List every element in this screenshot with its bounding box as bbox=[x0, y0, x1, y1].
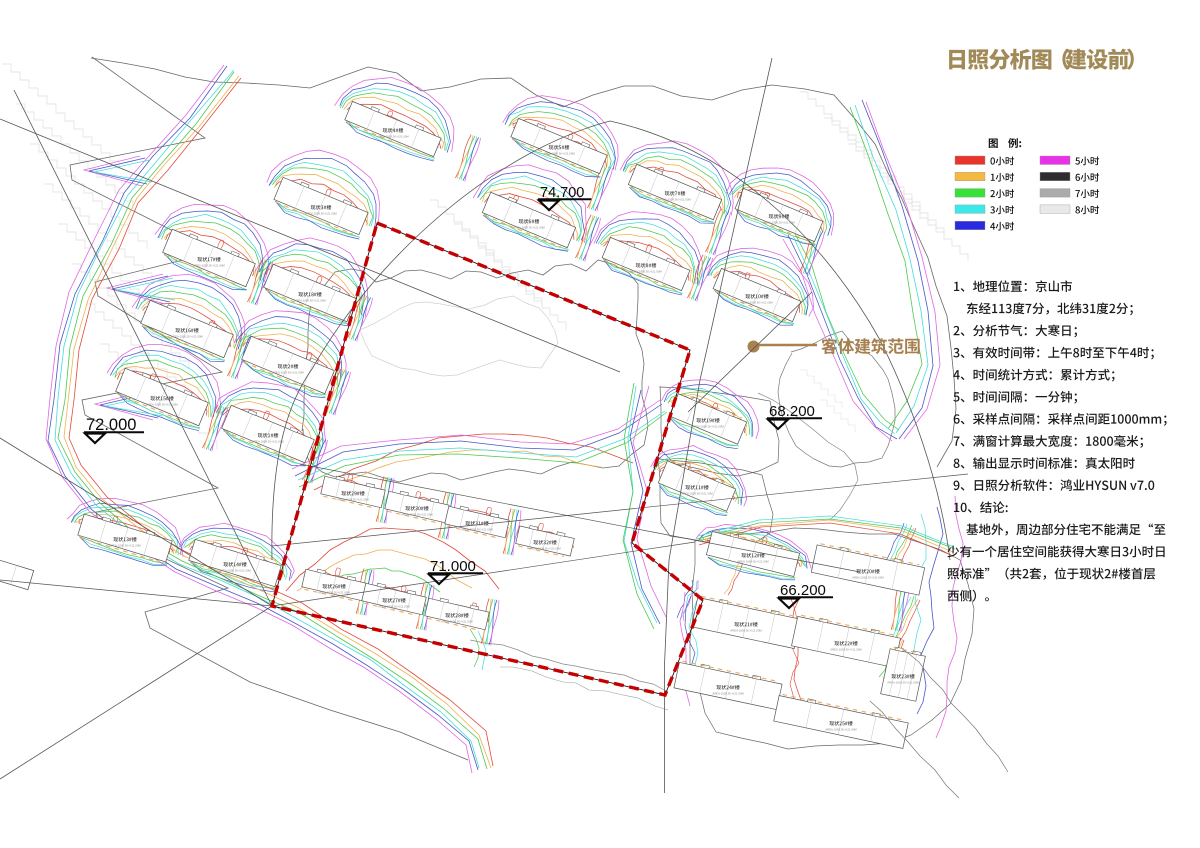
svg-text:AREA:1008.36 H:21.00M: AREA:1008.36 H:21.00M bbox=[712, 692, 744, 696]
svg-text:AREA:1008.36 H:21.00M: AREA:1008.36 H:21.00M bbox=[737, 560, 769, 564]
svg-text:AREA:1008.36 H:21.00M: AREA:1008.36 H:21.00M bbox=[109, 544, 141, 548]
svg-text:AREA:1008.36 H:21.00M: AREA:1008.36 H:21.00M bbox=[730, 629, 762, 633]
svg-text:AREA:1008.36 H:21.00M: AREA:1008.36 H:21.00M bbox=[513, 226, 545, 230]
svg-text:AREA:1008.36 H:21.00M: AREA:1008.36 H:21.00M bbox=[377, 135, 409, 139]
svg-text:AREA:1008.36 H:21.00M: AREA:1008.36 H:21.00M bbox=[825, 728, 857, 732]
svg-text:AREA:1008.36 H:21.00M: AREA:1008.36 H:21.00M bbox=[681, 492, 713, 496]
svg-text:AREA:1008.36 H:21.00M: AREA:1008.36 H:21.00M bbox=[830, 648, 862, 652]
svg-text:AREA:1008.36 H:21.00M: AREA:1008.36 H:21.00M bbox=[692, 425, 724, 429]
svg-text:AREA:1008.36 H:21.00M: AREA:1008.36 H:21.00M bbox=[852, 576, 884, 580]
svg-text:AREA:1008.36 H:21.00M: AREA:1008.36 H:21.00M bbox=[741, 301, 773, 305]
svg-text:AREA:1008.36 H:21.00M: AREA:1008.36 H:21.00M bbox=[630, 270, 662, 274]
svg-text:AREA:1008.36 H:21.00M: AREA:1008.36 H:21.00M bbox=[401, 513, 433, 517]
svg-text:AREA:1008.36 H:21.00M: AREA:1008.36 H:21.00M bbox=[887, 681, 919, 685]
svg-text:AREA:1008.36 H:21.00M: AREA:1008.36 H:21.00M bbox=[252, 440, 284, 444]
svg-text:AREA:1008.36 H:21.00M: AREA:1008.36 H:21.00M bbox=[378, 605, 410, 609]
svg-text:AREA:1008.36 H:21.00M: AREA:1008.36 H:21.00M bbox=[146, 403, 178, 407]
svg-text:AREA:1008.36 H:21.00M: AREA:1008.36 H:21.00M bbox=[659, 198, 691, 202]
svg-text:AREA:1008.36 H:21.00M: AREA:1008.36 H:21.00M bbox=[441, 620, 473, 624]
svg-text:AREA:1008.36 H:21.00M: AREA:1008.36 H:21.00M bbox=[193, 264, 225, 268]
svg-text:AREA:1008.36 H:21.00M: AREA:1008.36 H:21.00M bbox=[529, 547, 561, 551]
svg-text:AREA:1008.36 H:21.00M: AREA:1008.36 H:21.00M bbox=[543, 152, 575, 156]
svg-text:AREA:1008.36 H:21.00M: AREA:1008.36 H:21.00M bbox=[305, 212, 337, 216]
svg-text:AREA:1008.36 H:21.00M: AREA:1008.36 H:21.00M bbox=[337, 498, 369, 502]
svg-text:AREA:1008.36 H:21.00M: AREA:1008.36 H:21.00M bbox=[171, 335, 203, 339]
svg-text:AREA:1008.36 H:21.00M: AREA:1008.36 H:21.00M bbox=[461, 528, 493, 532]
svg-text:AREA:1008.36 H:21.00M: AREA:1008.36 H:21.00M bbox=[318, 591, 350, 595]
svg-text:AREA:1008.36 H:21.00M: AREA:1008.36 H:21.00M bbox=[219, 569, 251, 573]
svg-text:AREA:1008.36 H:21.00M: AREA:1008.36 H:21.00M bbox=[294, 299, 326, 303]
svg-text:AREA:1008.36 H:21.00M: AREA:1008.36 H:21.00M bbox=[272, 371, 304, 375]
